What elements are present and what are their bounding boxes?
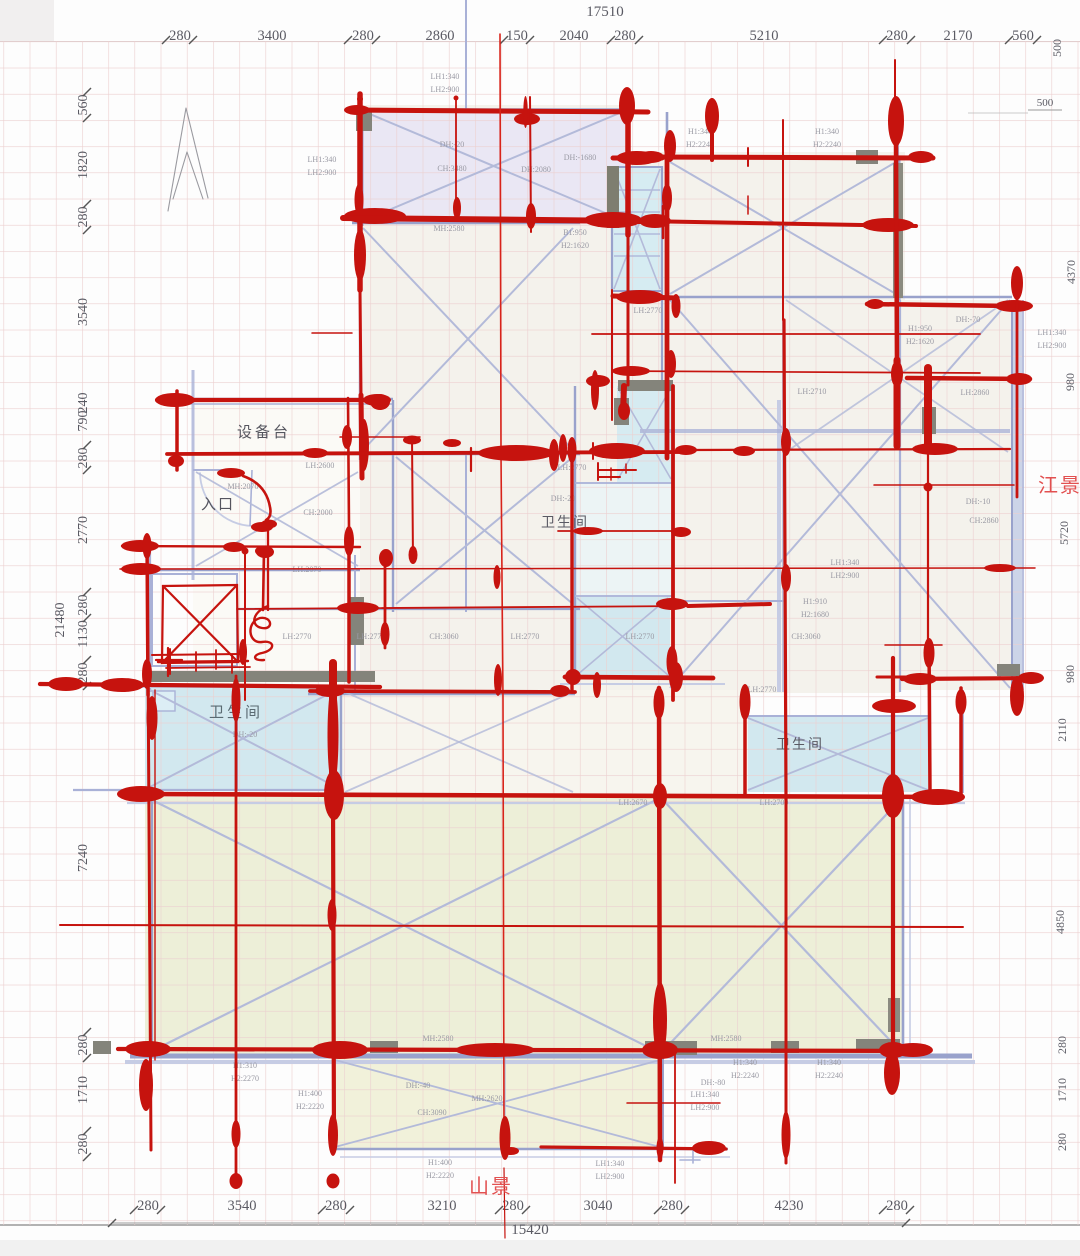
svg-text:280: 280 [76,595,91,616]
svg-text:MH:2620: MH:2620 [471,1094,502,1103]
svg-text:4370: 4370 [1064,260,1078,284]
svg-text:LH1:340: LH1:340 [831,558,860,567]
svg-text:LH:2770: LH:2770 [748,685,777,694]
svg-text:LH:2700: LH:2700 [760,798,789,807]
svg-text:280: 280 [76,448,91,469]
svg-text:240: 240 [76,393,91,414]
svg-text:560: 560 [76,95,91,116]
svg-text:H2:2240: H2:2240 [815,1071,843,1080]
svg-text:LH1:340: LH1:340 [431,72,460,81]
svg-text:5720: 5720 [1057,521,1071,545]
svg-text:1710: 1710 [76,1076,91,1104]
svg-text:LH:2770: LH:2770 [511,632,540,641]
svg-text:15420: 15420 [511,1222,549,1238]
svg-text:2770: 2770 [76,516,91,544]
svg-text:H2:1620: H2:1620 [906,337,934,346]
svg-text:山景: 山景 [469,1175,513,1198]
svg-text:LH2:900: LH2:900 [308,168,337,177]
svg-text:980: 980 [1063,373,1077,391]
svg-text:280: 280 [886,1198,908,1214]
svg-text:17510: 17510 [586,4,624,20]
svg-text:280: 280 [137,1198,159,1214]
svg-text:3400: 3400 [258,28,287,44]
svg-text:CH:3480: CH:3480 [437,164,466,173]
svg-text:H2:1620: H2:1620 [561,241,589,250]
svg-text:CH:2860: CH:2860 [969,516,998,525]
svg-text:LH:2670: LH:2670 [619,798,648,807]
svg-text:LH:2770: LH:2770 [634,306,663,315]
svg-text:7240: 7240 [76,844,91,872]
svg-text:5210: 5210 [750,28,779,44]
svg-text:卫生间: 卫生间 [776,736,824,752]
svg-text:280: 280 [1055,1036,1069,1054]
svg-text:LH:2710: LH:2710 [798,387,827,396]
svg-text:CH:3090: CH:3090 [417,1108,446,1117]
svg-text:CH:2000: CH:2000 [303,508,332,517]
svg-text:LH2:900: LH2:900 [831,571,860,580]
svg-text:980: 980 [1063,665,1077,683]
svg-text:2040: 2040 [560,28,589,44]
svg-text:H2:2220: H2:2220 [296,1102,324,1111]
svg-text:LH2:900: LH2:900 [1038,341,1067,350]
svg-text:LH1:340: LH1:340 [691,1090,720,1099]
svg-text:2860: 2860 [426,28,455,44]
svg-text:LH:2770: LH:2770 [283,632,312,641]
svg-text:500: 500 [1050,39,1064,57]
svg-text:4230: 4230 [775,1198,804,1214]
svg-text:280: 280 [886,28,908,44]
svg-text:LH1:340: LH1:340 [596,1159,625,1168]
svg-text:LH:2860: LH:2860 [961,388,990,397]
svg-text:H2:2240: H2:2240 [731,1071,759,1080]
svg-text:21480: 21480 [53,603,68,638]
svg-text:LH2:900: LH2:900 [431,85,460,94]
svg-text:790: 790 [76,411,91,432]
svg-text:MH:2070: MH:2070 [227,482,258,491]
svg-text:LH1:340: LH1:340 [308,155,337,164]
svg-text:H1:400: H1:400 [428,1158,452,1167]
svg-text:H2:2240: H2:2240 [813,140,841,149]
svg-text:入口: 入口 [201,496,235,513]
svg-text:H1:910: H1:910 [803,597,827,606]
svg-text:DH:-20: DH:-20 [440,140,464,149]
svg-text:MH:2580: MH:2580 [422,1034,453,1043]
svg-text:LH1:340: LH1:340 [1038,328,1067,337]
svg-text:3540: 3540 [228,1198,257,1214]
svg-text:H1:400: H1:400 [298,1089,322,1098]
svg-text:280: 280 [76,1035,91,1056]
svg-text:H1:950: H1:950 [908,324,932,333]
svg-text:H1:340: H1:340 [733,1058,757,1067]
svg-text:2110: 2110 [1055,718,1069,742]
svg-text:LH2:900: LH2:900 [596,1172,625,1181]
svg-text:MH:2580: MH:2580 [433,224,464,233]
svg-text:560: 560 [1012,28,1034,44]
svg-text:LH2:900: LH2:900 [691,1103,720,1112]
svg-text:MH:2580: MH:2580 [710,1034,741,1043]
svg-text:江景: 江景 [1038,474,1080,497]
svg-text:280: 280 [325,1198,347,1214]
svg-text:280: 280 [76,207,91,228]
svg-text:DH:2080: DH:2080 [521,165,551,174]
svg-text:CH:3060: CH:3060 [429,632,458,641]
svg-text:LH:2770: LH:2770 [626,632,655,641]
svg-text:1710: 1710 [1055,1078,1069,1102]
svg-text:DH:-10: DH:-10 [966,497,990,506]
svg-text:H2:2220: H2:2220 [426,1171,454,1180]
svg-text:3040: 3040 [584,1198,613,1214]
svg-text:1820: 1820 [76,151,91,179]
svg-text:280: 280 [169,28,191,44]
svg-text:设备台: 设备台 [237,424,291,441]
svg-text:DH:-40: DH:-40 [406,1081,430,1090]
svg-text:4850: 4850 [1053,910,1067,934]
svg-text:3210: 3210 [428,1198,457,1214]
svg-text:DH:-1680: DH:-1680 [564,153,596,162]
svg-text:B1:950: B1:950 [563,228,587,237]
svg-text:280: 280 [76,1134,91,1155]
svg-text:500: 500 [1037,97,1054,109]
svg-text:H1:340: H1:340 [817,1058,841,1067]
svg-text:DH:-80: DH:-80 [701,1078,725,1087]
svg-text:H2:1680: H2:1680 [801,610,829,619]
svg-text:3540: 3540 [76,298,91,326]
svg-text:H2:2240: H2:2240 [686,140,714,149]
svg-text:280: 280 [1055,1133,1069,1151]
svg-text:2170: 2170 [944,28,973,44]
svg-text:280: 280 [614,28,636,44]
svg-text:LH:2600: LH:2600 [306,461,335,470]
svg-text:280: 280 [661,1198,683,1214]
svg-text:150: 150 [506,28,528,44]
svg-text:H1:340: H1:340 [815,127,839,136]
svg-text:280: 280 [352,28,374,44]
svg-text:DH:-70: DH:-70 [956,315,980,324]
svg-text:1130: 1130 [76,620,91,647]
svg-text:280: 280 [502,1198,524,1214]
svg-text:CH:3060: CH:3060 [791,632,820,641]
